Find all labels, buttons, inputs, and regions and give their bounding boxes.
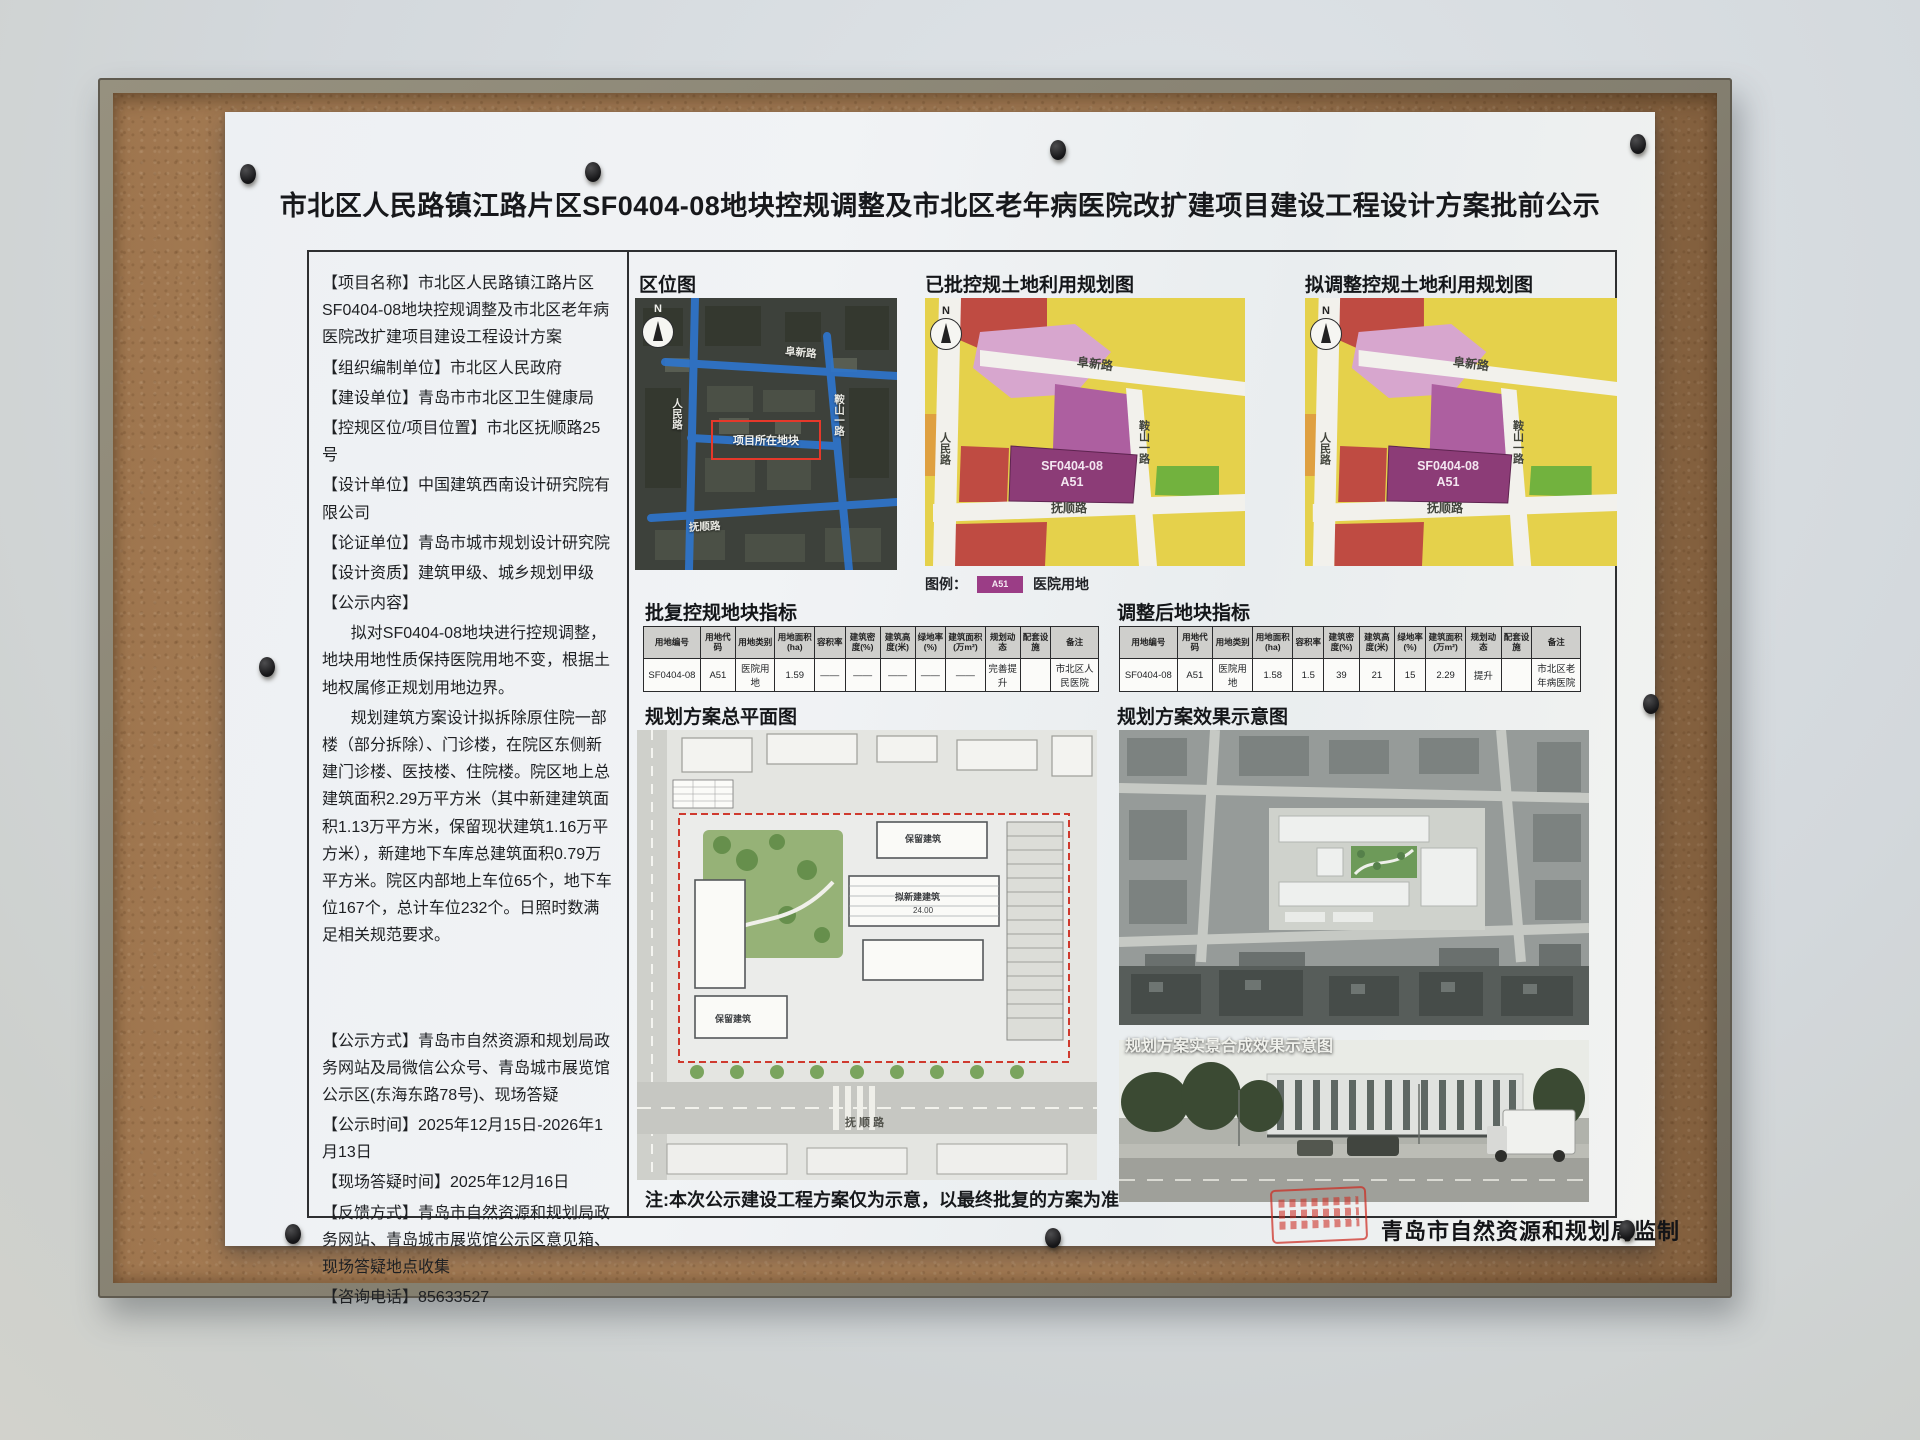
col-header: 建筑密度(%) <box>845 627 880 659</box>
main-area: 区位图 已批控规土地利用规划图 拟调整控规土地利用规划图 <box>629 252 1615 1216</box>
push-pin <box>1619 1220 1635 1240</box>
review-unit: 【论证单位】青岛市城市规划设计研究院 <box>322 530 614 557</box>
cell: —— <box>880 659 915 692</box>
road-label-fushun: 抚顺路 <box>1427 502 1463 515</box>
design-qualification: 【设计资质】建筑甲级、城乡规划甲级 <box>322 560 614 587</box>
cell: —— <box>946 659 986 692</box>
col-header: 配套设施 <box>1020 627 1050 659</box>
col-header: 用地代码 <box>1177 627 1212 659</box>
col-header: 建筑高度(米) <box>1359 627 1394 659</box>
cell: 21 <box>1359 659 1394 692</box>
cell: 完善提升 <box>985 659 1020 692</box>
cell: 1.5 <box>1293 659 1324 692</box>
col-header: 绿地率(%) <box>1395 627 1426 659</box>
cell: —— <box>845 659 880 692</box>
cell: —— <box>815 659 845 692</box>
approved-table-title: 批复控规地块指标 <box>645 598 797 625</box>
col-header: 用地类别 <box>1213 627 1253 659</box>
cell: A51 <box>700 659 735 692</box>
road-label-anshan: 鞍山一路 <box>833 394 844 436</box>
push-pin <box>1045 1228 1061 1248</box>
col-header: 建筑高度(米) <box>880 627 915 659</box>
col-header: 用地编号 <box>644 627 701 659</box>
push-pin <box>240 164 256 184</box>
cell: A51 <box>1177 659 1212 692</box>
parcel-label: SF0404-08 A51 <box>1013 458 1131 491</box>
landuse-graphic <box>1305 298 1617 566</box>
approved-indicators-table: 用地编号 用地代码 用地类别 用地面积(ha) 容积率 建筑密度(%) 建筑高度… <box>643 626 1099 692</box>
elevation-label: 24.00 <box>913 906 933 915</box>
aerial-render-image <box>1119 730 1589 1025</box>
north-arrow-icon: N <box>929 306 963 352</box>
site-plan-graphic <box>637 730 1097 1180</box>
col-header: 用地类别 <box>735 627 775 659</box>
supervisor-line: 青岛市自然资源和规划局监制 <box>1381 1214 1680 1246</box>
cell: 市北区老年病医院 <box>1532 659 1581 692</box>
col-header: 用地代码 <box>700 627 735 659</box>
design-unit: 【设计单位】中国建筑西南设计研究院有限公司 <box>322 472 614 526</box>
cell: SF0404-08 <box>1120 659 1178 692</box>
cell <box>1020 659 1050 692</box>
official-seal <box>1270 1186 1368 1244</box>
wall: 市北区人民路镇江路片区SF0404-08地块控规调整及市北区老年病医院改扩建项目… <box>0 0 1920 1440</box>
publicity-period: 【公示时间】2025年12月15日-2026年1月13日 <box>322 1112 614 1166</box>
adjusted-landuse-map: N 阜新路 鞍山一路 人民路 抚顺路 SF0404-08 A51 <box>1305 298 1617 566</box>
project-name: 【项目名称】市北区人民路镇江路片区SF0404-08地块控规调整及市北区老年病医… <box>322 270 614 352</box>
road-label-anshan: 鞍山一路 <box>1511 420 1523 464</box>
north-arrow-icon: N <box>1309 306 1343 352</box>
cell: 医院用地 <box>735 659 775 692</box>
legend-prefix: 图例： <box>925 574 967 594</box>
cell: 39 <box>1324 659 1359 692</box>
adjusted-table-title: 调整后地块指标 <box>1117 598 1250 625</box>
cell: —— <box>915 659 945 692</box>
col-header: 建筑面积(万m²) <box>946 627 986 659</box>
legend-swatch-a51: A51 <box>977 576 1023 593</box>
road-label-fushun: 抚 顺 路 <box>845 1114 884 1130</box>
push-pin <box>1630 134 1646 154</box>
feedback-method: 【反馈方式】青岛市自然资源和规划局政务网站、青岛城市展览馆公示区意见箱、现场答疑… <box>322 1200 614 1282</box>
push-pin <box>1050 140 1066 160</box>
phone-number: 【咨询电话】85633527 <box>322 1284 614 1311</box>
publicity-content-heading: 【公示内容】 <box>322 590 614 617</box>
retained-building-label-2: 保留建筑 <box>715 1012 751 1025</box>
page-title: 市北区人民路镇江路片区SF0404-08地块控规调整及市北区老年病医院改扩建项目… <box>225 184 1655 223</box>
project-info-panel: 【项目名称】市北区人民路镇江路片区SF0404-08地块控规调整及市北区老年病医… <box>309 252 629 1216</box>
composite-view-label: 规划方案实景合成效果示意图 <box>1125 1032 1333 1056</box>
render-view-title: 规划方案效果示意图 <box>1117 702 1288 729</box>
road-label-renmin: 人民路 <box>1318 432 1330 465</box>
col-header: 绿地率(%) <box>915 627 945 659</box>
table-row: SF0404-08 A51 医院用地 1.58 1.5 39 21 15 2.2… <box>1120 659 1581 692</box>
organizer: 【组织编制单位】市北区人民政府 <box>322 355 614 382</box>
parcel-label: SF0404-08 A51 <box>1389 458 1507 491</box>
legend-label: 医院用地 <box>1033 574 1089 594</box>
cell: 1.59 <box>775 659 815 692</box>
push-pin <box>1643 694 1659 714</box>
new-building-label: 拟新建建筑 <box>895 890 940 903</box>
site-plan-image: 保留建筑 拟新建建筑 24.00 保留建筑 抚 顺 路 <box>637 730 1097 1180</box>
col-header: 备注 <box>1532 627 1581 659</box>
road-label-renmin: 人民路 <box>938 432 950 465</box>
adjusted-indicators-table: 用地编号 用地代码 用地类别 用地面积(ha) 容积率 建筑密度(%) 建筑高度… <box>1119 626 1581 692</box>
retained-building-label: 保留建筑 <box>905 832 941 845</box>
approved-landuse-map: N 阜新路 鞍山一路 人民路 抚顺路 SF0404-08 A51 <box>925 298 1245 566</box>
approved-map-title: 已批控规土地利用规划图 <box>925 270 1134 297</box>
col-header: 用地编号 <box>1120 627 1178 659</box>
street-photo-graphic <box>1119 1040 1589 1202</box>
location-map: N 阜新路 人民路 鞍山一路 抚顺路 项目所在地块 <box>635 298 897 570</box>
col-header: 建筑密度(%) <box>1324 627 1359 659</box>
adjusted-map-title: 拟调整控规土地利用规划图 <box>1305 270 1533 297</box>
road-label-renmin: 人民路 <box>671 398 682 430</box>
cell: 15 <box>1395 659 1426 692</box>
map-legend: 图例： A51 医院用地 <box>925 574 1089 594</box>
site-plan-title: 规划方案总平面图 <box>645 702 797 729</box>
cell: 提升 <box>1466 659 1501 692</box>
cell: 医院用地 <box>1213 659 1253 692</box>
street-photo <box>1119 1040 1589 1202</box>
qa-date: 【现场答疑时间】2025年12月16日 <box>322 1169 614 1196</box>
table-header-row: 用地编号 用地代码 用地类别 用地面积(ha) 容积率 建筑密度(%) 建筑高度… <box>644 627 1099 659</box>
north-arrow-icon: N <box>641 304 675 350</box>
road-label-fushun: 抚顺路 <box>1051 502 1087 515</box>
disclaimer-note: 注:本次公示建设工程方案仅为示意，以最终批复的方案为准 <box>645 1186 1119 1212</box>
notice-poster: 市北区人民路镇江路片区SF0404-08地块控规调整及市北区老年病医院改扩建项目… <box>225 112 1655 1246</box>
col-header: 容积率 <box>1293 627 1324 659</box>
publicity-method: 【公示方式】青岛市自然资源和规划局政务网站及局微信公众号、青岛城市展览馆公示区(… <box>322 1028 614 1110</box>
col-header: 备注 <box>1051 627 1099 659</box>
cell: SF0404-08 <box>644 659 701 692</box>
publicity-content-1: 拟对SF0404-08地块进行控规调整，地块用地性质保持医院用地不变，根据土地权… <box>322 620 614 702</box>
content-frame: 【项目名称】市北区人民路镇江路片区SF0404-08地块控规调整及市北区老年病医… <box>307 250 1617 1218</box>
cell <box>1501 659 1532 692</box>
publicity-content-2: 规划建筑方案设计拟拆除原住院一部楼（部分拆除）、门诊楼，在院区东侧新建门诊楼、医… <box>322 705 614 950</box>
road-label-fushun: 抚顺路 <box>689 521 721 534</box>
builder: 【建设单位】青岛市市北区卫生健康局 <box>322 385 614 412</box>
col-header: 用地面积(ha) <box>775 627 815 659</box>
cell: 1.58 <box>1253 659 1293 692</box>
col-header: 规划动态 <box>1466 627 1501 659</box>
col-header: 配套设施 <box>1501 627 1532 659</box>
table-header-row: 用地编号 用地代码 用地类别 用地面积(ha) 容积率 建筑密度(%) 建筑高度… <box>1120 627 1581 659</box>
project-site-marker: 项目所在地块 <box>711 420 821 460</box>
push-pin <box>285 1224 301 1244</box>
col-header: 建筑面积(万m²) <box>1426 627 1466 659</box>
col-header: 规划动态 <box>985 627 1020 659</box>
push-pin <box>259 657 275 677</box>
col-header: 用地面积(ha) <box>1253 627 1293 659</box>
landuse-graphic <box>925 298 1245 566</box>
cell: 市北区人民医院 <box>1051 659 1099 692</box>
aerial-graphic <box>1119 730 1589 1025</box>
table-row: SF0404-08 A51 医院用地 1.59 —— —— —— —— —— 完… <box>644 659 1099 692</box>
project-location: 【控规区位/项目位置】市北区抚顺路25号 <box>322 415 614 469</box>
location-map-title: 区位图 <box>639 270 696 297</box>
road-label-anshan: 鞍山一路 <box>1137 420 1149 464</box>
cell: 2.29 <box>1426 659 1466 692</box>
push-pin <box>585 162 601 182</box>
col-header: 容积率 <box>815 627 845 659</box>
